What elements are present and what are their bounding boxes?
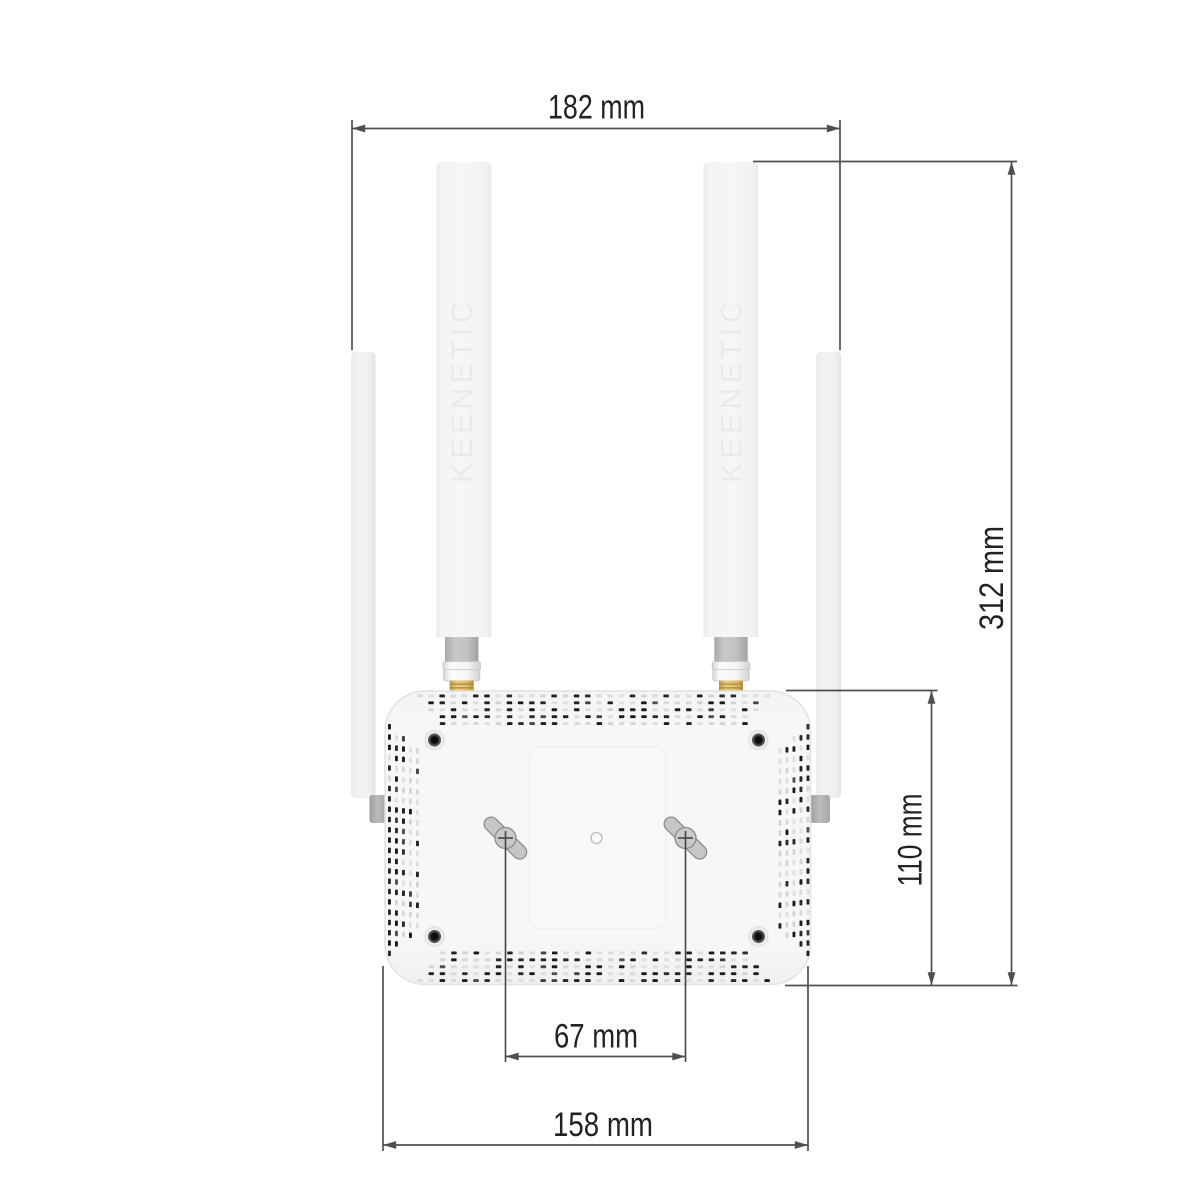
svg-text:182 mm: 182 mm	[548, 89, 645, 127]
svg-text:KEENETIC: KEENETIC	[446, 297, 479, 483]
svg-text:158 mm: 158 mm	[553, 1106, 653, 1144]
svg-text:KEENETIC: KEENETIC	[716, 297, 749, 483]
svg-text:67 mm: 67 mm	[554, 1018, 638, 1056]
svg-text:312 mm: 312 mm	[973, 526, 1011, 630]
svg-text:110 mm: 110 mm	[892, 794, 930, 887]
